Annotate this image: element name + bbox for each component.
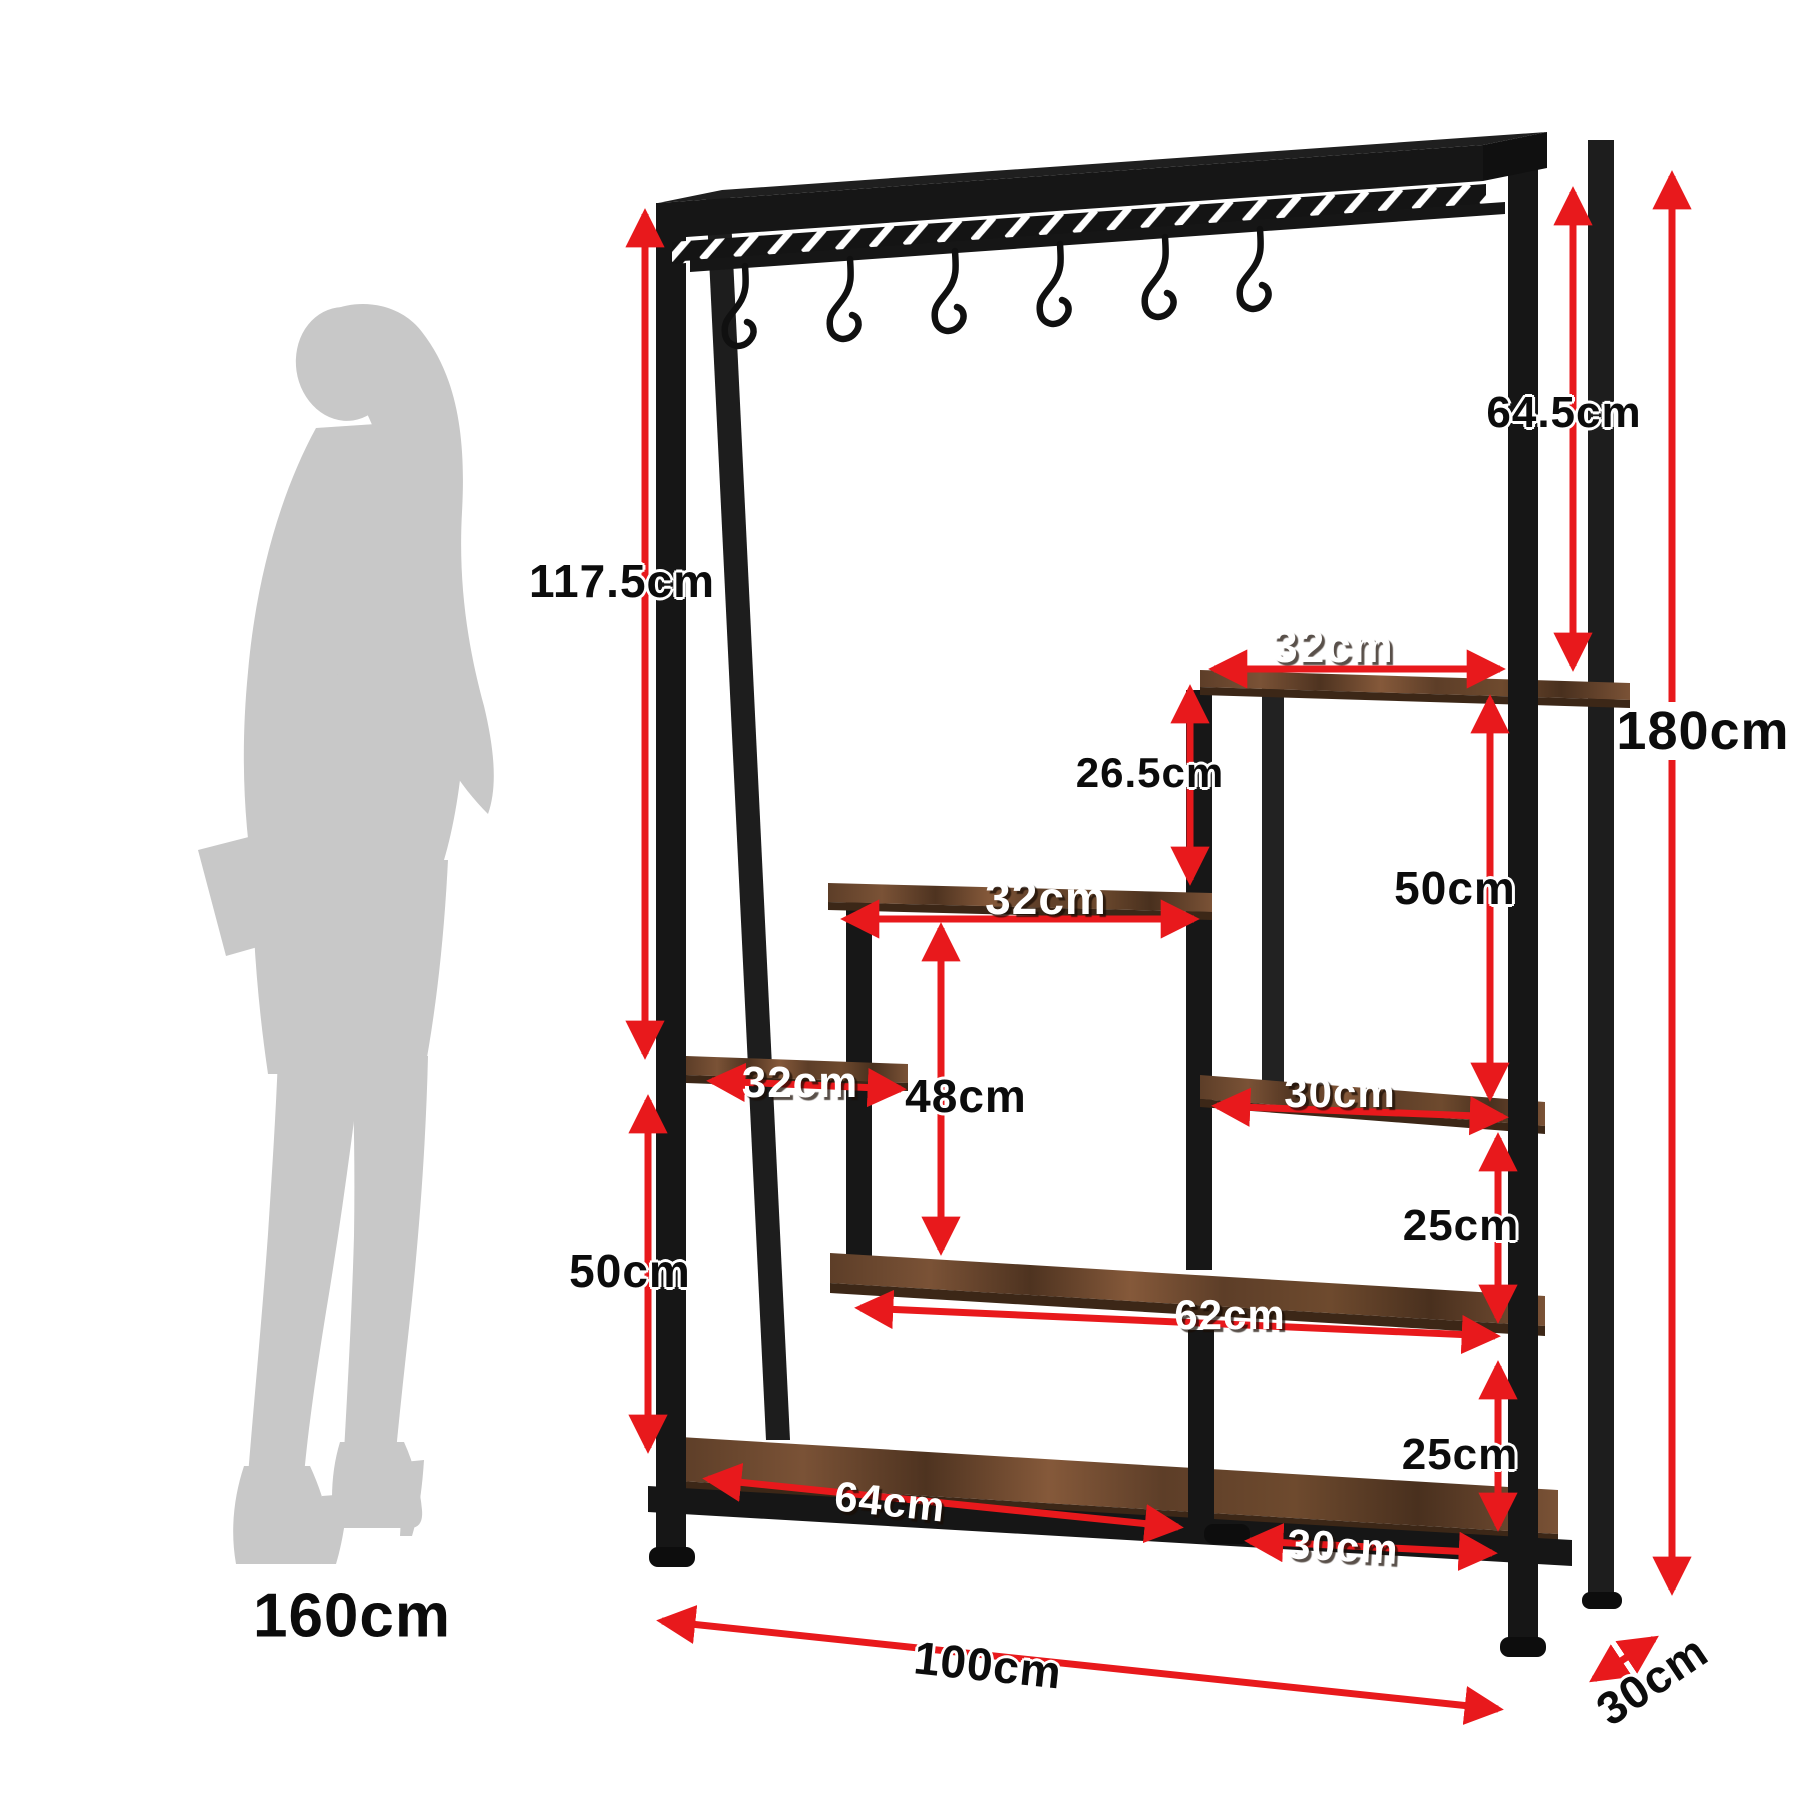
s-hook-2	[830, 259, 859, 339]
reference-height-label: 160cm	[253, 1581, 451, 1652]
s-hook-4	[1040, 244, 1069, 324]
left-front-foot	[649, 1547, 695, 1567]
silhouette-front-leg	[248, 1056, 362, 1476]
dim-label-right-gap-lower: 25cm	[1402, 1430, 1519, 1480]
inner-post-center-back	[1262, 684, 1284, 1098]
product-dimension-diagram: 117.5cm 50cm 64.5cm 26.5cm 50cm 48cm 25c…	[0, 0, 1800, 1800]
silhouette-hips	[252, 860, 448, 1074]
dim-label-long-shelf-width: 62cm	[1174, 1291, 1285, 1339]
dim-label-right-upper-column: 50cm	[1394, 861, 1516, 915]
left-back-post	[706, 196, 790, 1440]
right-back-post	[1588, 140, 1614, 1598]
right-back-foot	[1582, 1592, 1622, 1609]
dim-label-bottom-right-shelf-width: 30cm	[1286, 1520, 1400, 1574]
dim-label-right-top-gap: 64.5cm	[1486, 388, 1641, 438]
left-front-post	[656, 203, 686, 1555]
silhouette-front-boot	[233, 1466, 332, 1564]
dim-label-middle-column: 48cm	[905, 1069, 1027, 1123]
dim-label-step-gap: 26.5cm	[1076, 749, 1224, 797]
right-front-foot	[1500, 1637, 1546, 1657]
dim-label-right-shelf-width: 30cm	[1284, 1069, 1395, 1117]
dim-label-middle-shelf-width: 32cm	[985, 871, 1107, 925]
dim-label-hang-height: 117.5cm	[529, 554, 715, 608]
dim-label-top-shelf-width: 32cm	[1272, 619, 1394, 673]
center-front-leg	[1188, 1330, 1214, 1528]
s-hook-3	[935, 251, 964, 331]
dim-line-100cm	[662, 1621, 1498, 1709]
silhouette-back-leg	[344, 1056, 428, 1452]
s-hook-6	[1240, 229, 1269, 309]
dim-label-total-height: 180cm	[1616, 700, 1789, 762]
s-hook-5	[1145, 237, 1174, 317]
dim-label-right-gap-upper: 25cm	[1403, 1201, 1520, 1251]
diagram-canvas	[0, 0, 1800, 1800]
center-foot	[1204, 1524, 1250, 1544]
human-silhouette	[198, 301, 494, 1564]
dim-label-left-shelf-width: 32cm	[742, 1058, 859, 1108]
dim-label-left-bottom-gap: 50cm	[569, 1244, 691, 1298]
